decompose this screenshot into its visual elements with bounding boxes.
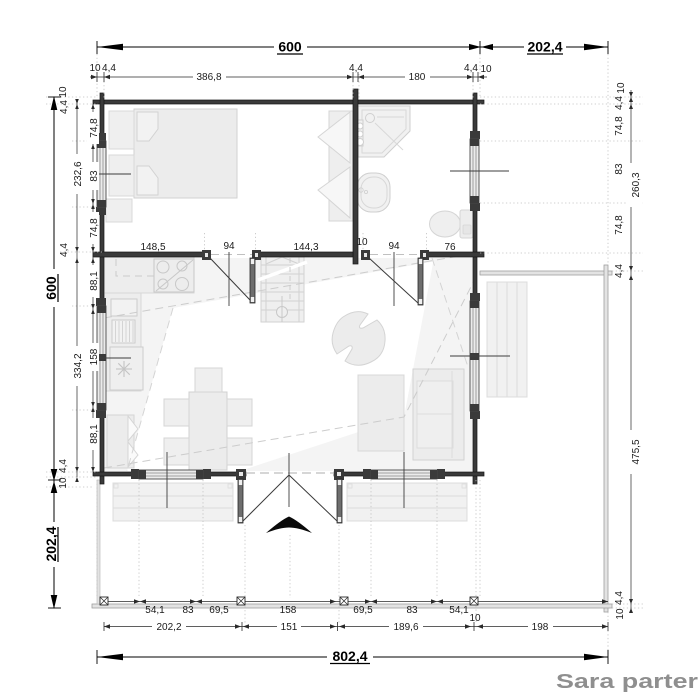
svg-text:151: 151 xyxy=(281,622,298,633)
svg-text:202,2: 202,2 xyxy=(156,622,181,633)
svg-text:144,3: 144,3 xyxy=(293,242,318,253)
svg-text:10: 10 xyxy=(615,608,626,620)
svg-text:74,8: 74,8 xyxy=(614,215,625,235)
svg-text:386,8: 386,8 xyxy=(196,72,221,83)
svg-text:10: 10 xyxy=(58,477,69,489)
svg-text:475,5: 475,5 xyxy=(631,439,642,464)
svg-text:4,4: 4,4 xyxy=(464,63,478,74)
svg-text:4,4: 4,4 xyxy=(102,63,116,74)
svg-text:10: 10 xyxy=(469,613,481,624)
svg-text:54,1: 54,1 xyxy=(145,605,165,616)
svg-text:4,4: 4,4 xyxy=(59,243,70,257)
svg-text:158: 158 xyxy=(280,605,297,616)
svg-text:600: 600 xyxy=(278,39,302,55)
svg-text:802,4: 802,4 xyxy=(332,648,367,664)
svg-text:10: 10 xyxy=(480,64,492,75)
svg-text:334,2: 334,2 xyxy=(73,353,84,378)
svg-text:260,3: 260,3 xyxy=(631,172,642,197)
svg-text:198: 198 xyxy=(532,622,549,633)
svg-text:10: 10 xyxy=(616,82,627,94)
svg-text:Sara parter: Sara parter xyxy=(556,671,698,693)
svg-text:10: 10 xyxy=(89,63,101,74)
svg-text:232,6: 232,6 xyxy=(73,161,84,186)
svg-text:4,4: 4,4 xyxy=(614,264,625,278)
svg-text:10: 10 xyxy=(58,86,69,98)
svg-text:54,1: 54,1 xyxy=(449,605,469,616)
svg-text:76: 76 xyxy=(444,242,456,253)
svg-text:148,5: 148,5 xyxy=(140,242,165,253)
svg-text:74,8: 74,8 xyxy=(89,118,100,138)
svg-text:202,4: 202,4 xyxy=(527,39,562,55)
svg-text:4,4: 4,4 xyxy=(349,63,363,74)
svg-text:83: 83 xyxy=(614,163,625,175)
svg-text:88,1: 88,1 xyxy=(89,271,100,291)
svg-text:74,8: 74,8 xyxy=(614,116,625,136)
svg-text:4,4: 4,4 xyxy=(614,96,625,110)
svg-text:189,6: 189,6 xyxy=(393,622,418,633)
svg-text:69,5: 69,5 xyxy=(209,605,229,616)
svg-text:10: 10 xyxy=(356,237,368,248)
svg-text:88,1: 88,1 xyxy=(89,424,100,444)
svg-text:83: 83 xyxy=(89,170,100,182)
svg-text:94: 94 xyxy=(223,241,235,252)
svg-text:4,4: 4,4 xyxy=(614,591,625,605)
svg-text:202,4: 202,4 xyxy=(43,526,59,561)
svg-text:600: 600 xyxy=(43,276,59,300)
svg-text:4,4: 4,4 xyxy=(59,100,70,114)
svg-text:69,5: 69,5 xyxy=(353,605,373,616)
svg-text:4,4: 4,4 xyxy=(58,459,69,473)
svg-text:180: 180 xyxy=(409,72,426,83)
svg-text:83: 83 xyxy=(406,605,418,616)
svg-text:158: 158 xyxy=(89,348,100,365)
svg-text:94: 94 xyxy=(388,241,400,252)
svg-text:83: 83 xyxy=(182,605,194,616)
svg-text:74,8: 74,8 xyxy=(89,218,100,238)
